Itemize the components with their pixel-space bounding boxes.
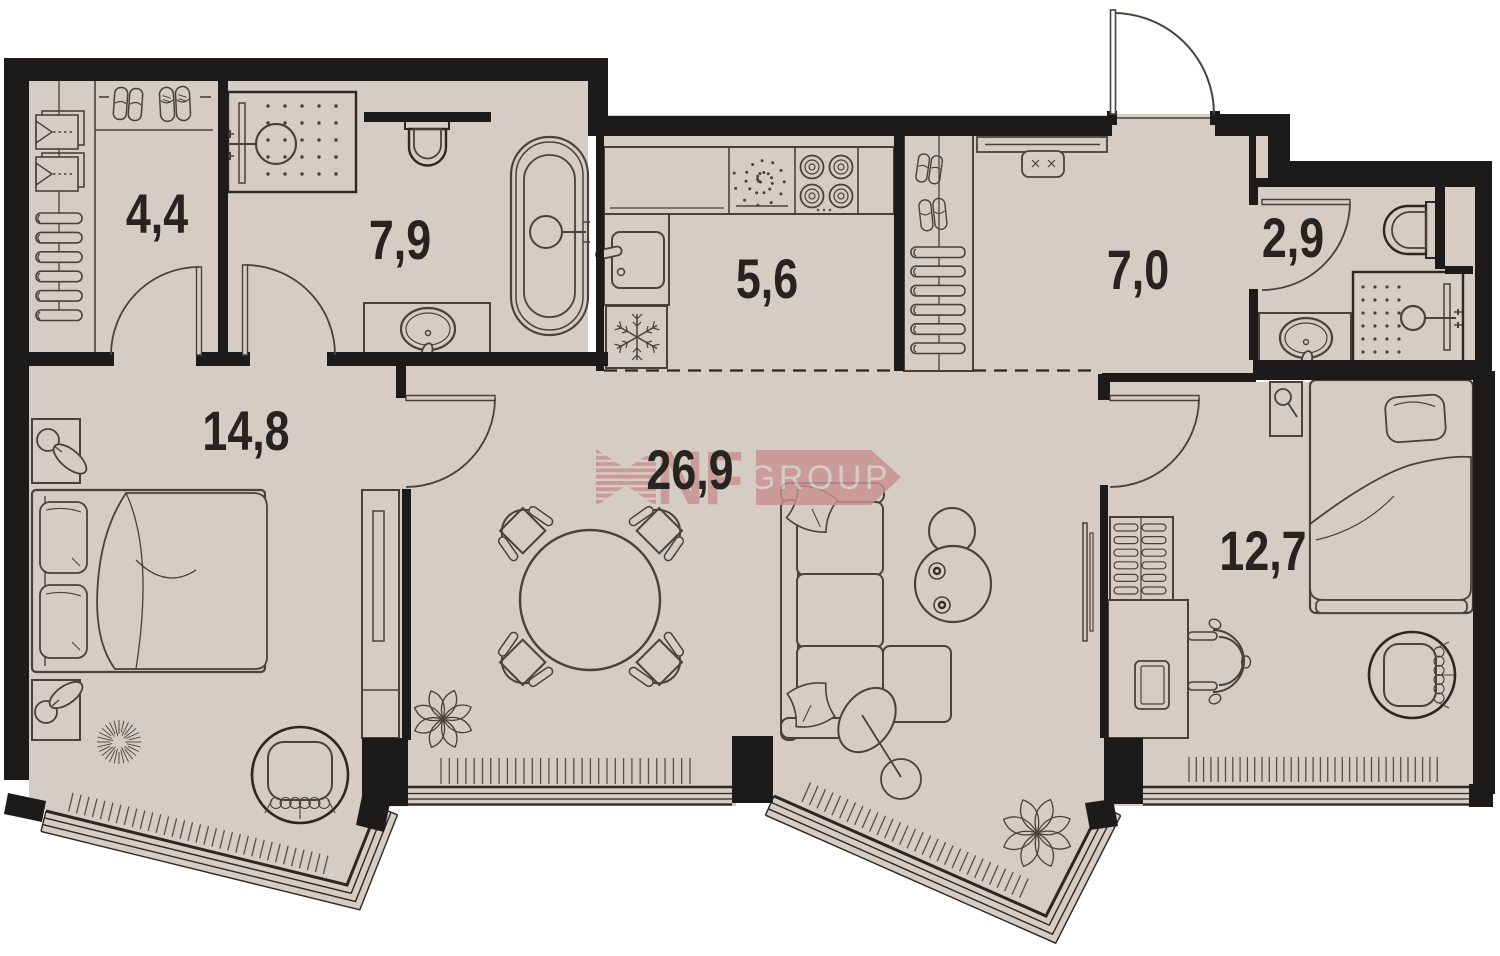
svg-text:GROUP: GROUP <box>749 459 891 497</box>
svg-text:4,4: 4,4 <box>126 182 188 245</box>
svg-text:7,0: 7,0 <box>1107 238 1169 301</box>
svg-text:12,7: 12,7 <box>1219 519 1306 582</box>
svg-text:7,9: 7,9 <box>369 208 431 271</box>
svg-text:14,8: 14,8 <box>202 399 289 462</box>
svg-text:2,9: 2,9 <box>1262 206 1324 269</box>
svg-text:26,9: 26,9 <box>646 438 733 501</box>
svg-text:5,6: 5,6 <box>736 247 798 310</box>
